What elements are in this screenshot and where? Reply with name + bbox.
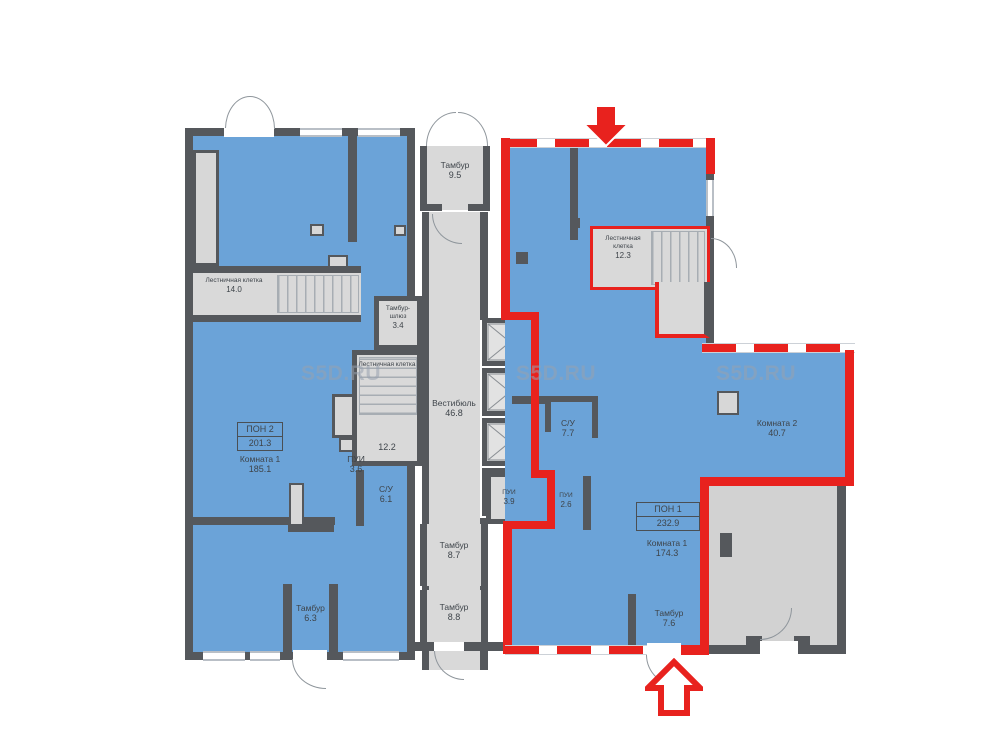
room-area: 2.6	[549, 500, 583, 510]
window	[343, 651, 399, 661]
room-area: 185.1	[215, 464, 305, 475]
door-gap	[224, 128, 274, 137]
wall	[348, 136, 357, 242]
wall	[480, 212, 488, 320]
room-area: 12.2	[357, 442, 417, 453]
door-arc	[434, 650, 464, 680]
column	[394, 225, 406, 236]
unit-boundary	[706, 138, 715, 174]
room-label-stair-123: Лестничная клетка 12.3	[595, 235, 651, 260]
wall	[512, 396, 546, 404]
room-label-komnata2: Комната 2 40.7	[742, 418, 812, 439]
unit-area: 201.3	[238, 437, 282, 450]
room-name: Тамбур	[427, 160, 483, 170]
room-area: 174.3	[622, 548, 712, 559]
unit-code: ПОН 1	[637, 503, 699, 517]
floor-plan-canvas: Лестничная клетка 14.0 ПОН 2 201.3 Комна…	[0, 0, 1000, 750]
column	[516, 252, 528, 264]
tambour-88: Тамбур 8.8	[420, 590, 488, 644]
wall	[583, 476, 591, 530]
entrance-arrow-down-icon	[583, 104, 629, 148]
unit-boundary	[845, 350, 854, 486]
window	[250, 651, 280, 661]
column	[570, 218, 580, 228]
storage-box	[655, 282, 710, 338]
room-area: 3.4	[379, 321, 417, 331]
room-name: Лестничная клетка	[595, 235, 651, 251]
room-area: 8.8	[427, 612, 481, 623]
stairwell-123: Лестничная клетка 12.3	[590, 226, 710, 290]
entrance-arrow-up-icon	[645, 658, 703, 716]
room-label-stair-14: Лестничная клетка 14.0	[193, 277, 275, 294]
room-name: Тамбур	[427, 540, 481, 550]
unit-boundary-window-wall	[702, 343, 855, 353]
room-area: 6.1	[366, 494, 406, 505]
room-area: 9.5	[427, 170, 483, 181]
wall	[288, 524, 334, 532]
watermark-text: S5D.RU	[511, 362, 601, 386]
door-arc	[426, 112, 456, 146]
watermark-text: S5D.RU	[711, 362, 801, 386]
room-area: 14.0	[193, 285, 275, 295]
room-label-tambour-95: Тамбур 9.5	[427, 160, 483, 181]
room-name: С/У	[546, 418, 590, 428]
wall	[420, 204, 442, 211]
door-gap	[760, 641, 798, 655]
unit-boundary	[700, 477, 709, 655]
room-name: Комната 2	[742, 418, 812, 428]
wall	[356, 470, 364, 526]
unit-code: ПОН 2	[238, 423, 282, 437]
room-label-su-left: С/У 6.1	[366, 484, 406, 505]
unit-boundary-window-wall	[505, 645, 647, 655]
room-area: 7.6	[640, 618, 698, 629]
room-area: 8.7	[427, 550, 481, 561]
room-label-pui-26: ПУИ 2.6	[549, 492, 583, 509]
door-arc	[292, 659, 326, 689]
room-name: ПУИ	[549, 492, 583, 500]
door-gap	[647, 643, 681, 656]
room-name: Комната 1	[215, 454, 305, 464]
unit-code-box-pon1: ПОН 1 232.9	[636, 502, 700, 531]
room-area: 6.3	[283, 613, 338, 624]
room-label-tambour-88: Тамбур 8.8	[427, 602, 481, 623]
wall	[592, 396, 598, 438]
room-area: 40.7	[742, 428, 812, 439]
room-label-komnata1-left: Комната 1 185.1	[215, 454, 305, 475]
room-label-pui-39: ПУИ 3.9	[491, 489, 527, 506]
fixture	[720, 533, 732, 557]
tambour-lock: Тамбур-шлюз 3.4	[374, 296, 422, 350]
room-label-su-77: С/У 7.7	[546, 418, 590, 439]
column	[289, 483, 304, 528]
room-name: Тамбур-шлюз	[379, 305, 417, 321]
room-name: Лестничная клетка	[193, 277, 275, 285]
unit-boundary	[700, 477, 852, 486]
room-name: Вестибюль	[429, 398, 479, 408]
door-arc	[458, 112, 488, 146]
window	[300, 128, 342, 137]
window	[203, 651, 245, 661]
room-label-tambour-76: Тамбур 7.6	[640, 608, 698, 629]
stair-treads	[651, 231, 705, 285]
room-label-vestibule: Вестибюль 46.8	[429, 398, 479, 419]
window	[358, 128, 400, 137]
room-name: Тамбур	[283, 603, 338, 613]
room-label-lock: Тамбур-шлюз 3.4	[379, 305, 417, 330]
tambour-87: Тамбур 8.7	[420, 524, 488, 586]
wall	[628, 594, 636, 650]
room-area: 3.9	[491, 497, 527, 507]
window	[706, 180, 714, 216]
room-name: Тамбур	[427, 602, 481, 612]
room-name: С/У	[366, 484, 406, 494]
unit-boundary	[503, 521, 512, 654]
door-arc	[711, 238, 737, 268]
room-label-stair-122-area: 12.2	[357, 442, 417, 453]
unit-boundary	[531, 312, 539, 478]
column	[310, 224, 324, 236]
tambour-95: Тамбур 9.5	[420, 146, 490, 210]
room-area: 46.8	[429, 408, 479, 419]
room-name: ПУИ	[491, 489, 527, 497]
room-name: Тамбур	[640, 608, 698, 618]
room-area: 12.3	[595, 251, 651, 261]
stairwell-14: Лестничная клетка 14.0	[193, 266, 361, 322]
door-gap	[293, 650, 327, 661]
fixture	[717, 391, 739, 415]
stair-treads	[277, 275, 359, 313]
wall-niche	[193, 150, 219, 266]
room-name: ПУИ	[336, 454, 376, 464]
room-name: Комната 1	[622, 538, 712, 548]
unit-code-box-pon2: ПОН 2 201.3	[237, 422, 283, 451]
room-label-komnata1-right: Комната 1 174.3	[622, 538, 712, 559]
wall	[546, 396, 596, 402]
room-label-tambour-63: Тамбур 6.3	[283, 603, 338, 624]
room-area: 3.6	[336, 464, 376, 475]
room-label-pui-left: ПУИ 3.6	[336, 454, 376, 475]
room-label-tambour-87: Тамбур 8.7	[427, 540, 481, 561]
door-arc	[225, 96, 250, 129]
wall	[468, 204, 490, 211]
unit-boundary	[501, 138, 510, 318]
door-arc	[250, 96, 275, 129]
unit-area: 232.9	[637, 517, 699, 530]
watermark-text: S5D.RU	[296, 362, 386, 386]
room-area: 7.7	[546, 428, 590, 439]
door-gap	[434, 642, 464, 651]
